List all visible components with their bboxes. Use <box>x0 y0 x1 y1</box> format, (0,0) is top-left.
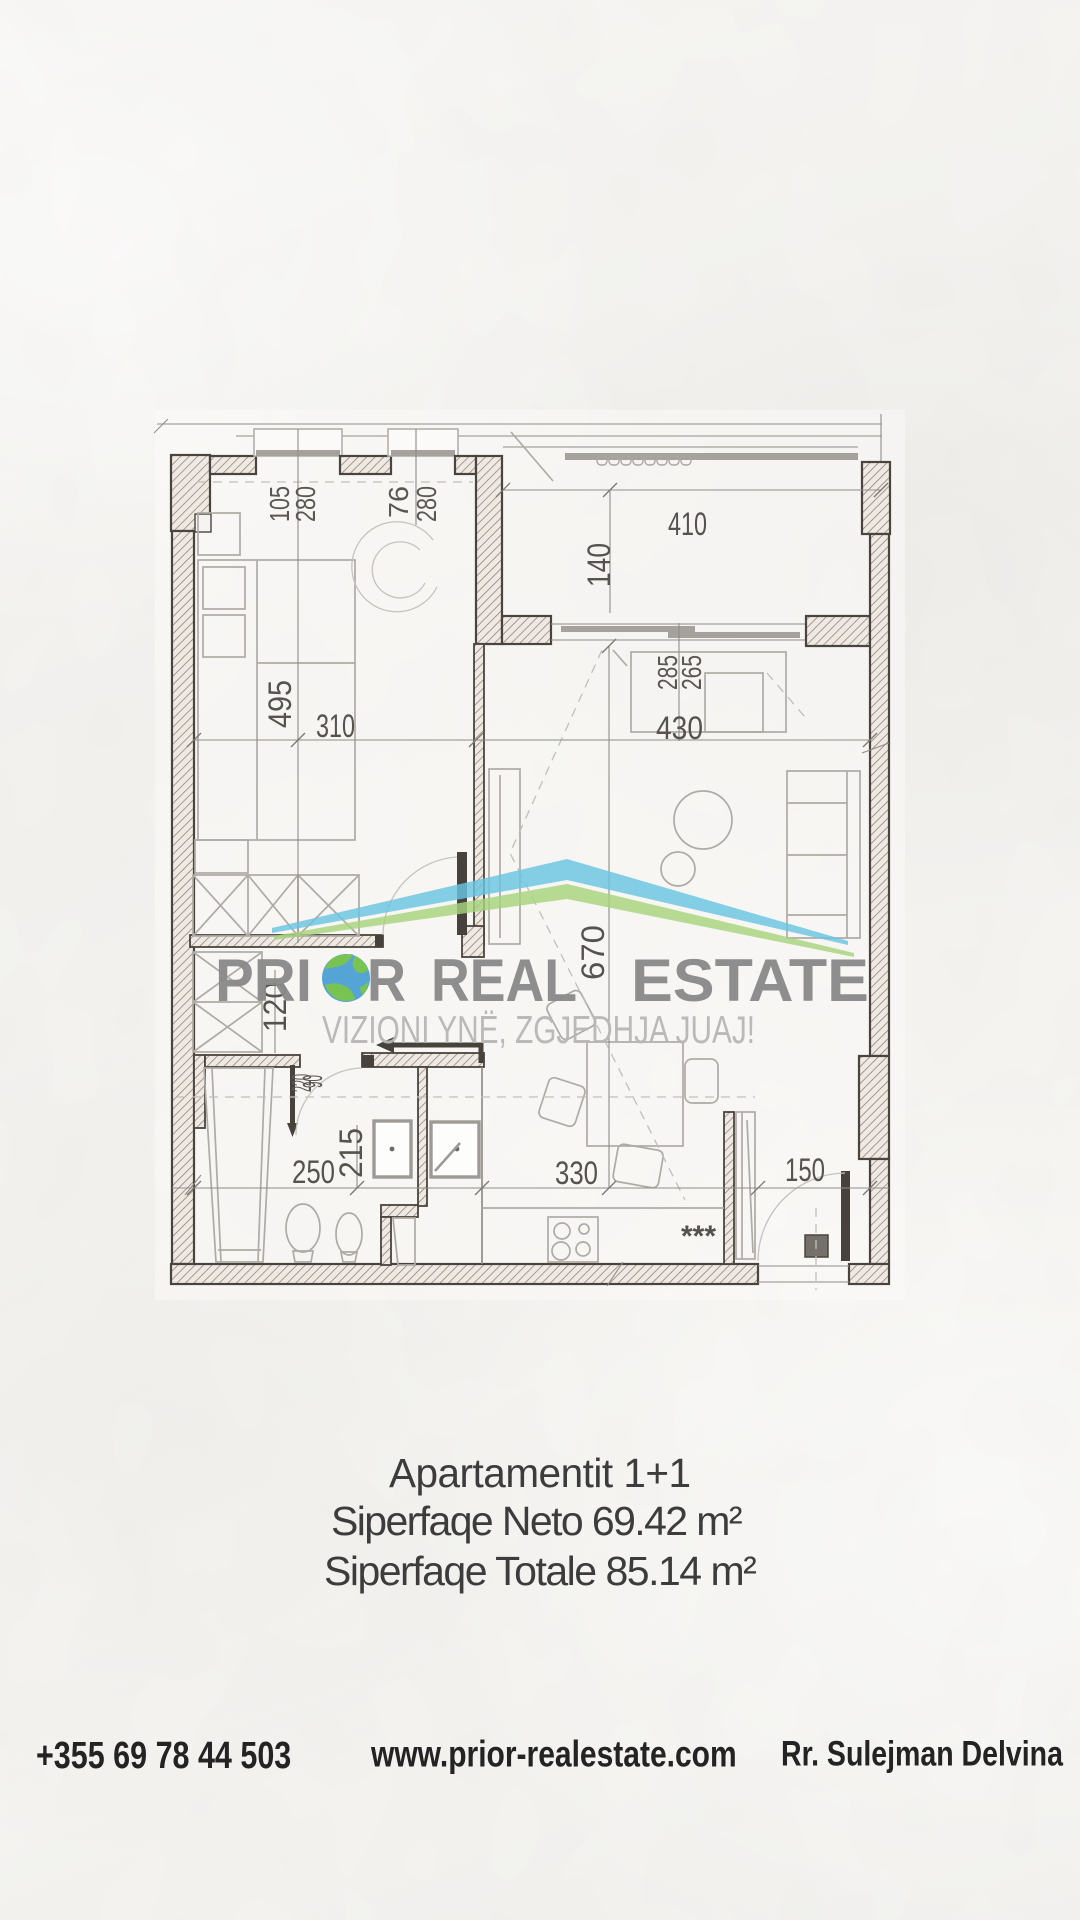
svg-text:265: 265 <box>676 655 707 690</box>
svg-text:ESTATE: ESTATE <box>631 947 869 1014</box>
svg-text:***: *** <box>681 1220 716 1253</box>
svg-text:215: 215 <box>333 1128 369 1178</box>
svg-text:REAL: REAL <box>431 947 577 1014</box>
svg-text:410: 410 <box>668 506 707 542</box>
svg-text:VIZIONI YNË, ZGJEDHJA JUAJ!: VIZIONI YNË, ZGJEDHJA JUAJ! <box>322 1009 755 1052</box>
svg-text:495: 495 <box>262 680 298 728</box>
svg-text:PRI: PRI <box>215 947 312 1014</box>
svg-text:430: 430 <box>656 710 703 746</box>
svg-text:310: 310 <box>316 708 355 744</box>
svg-text:150: 150 <box>785 1152 825 1188</box>
svg-text:90: 90 <box>297 1075 328 1088</box>
svg-text:250: 250 <box>292 1154 335 1190</box>
svg-text:140: 140 <box>581 543 617 587</box>
svg-text:330: 330 <box>555 1155 598 1191</box>
svg-text:280: 280 <box>411 486 442 522</box>
svg-text:R: R <box>367 947 406 1014</box>
svg-text:280: 280 <box>290 486 321 522</box>
svg-text:76: 76 <box>383 486 414 518</box>
svg-text:670: 670 <box>575 925 611 980</box>
